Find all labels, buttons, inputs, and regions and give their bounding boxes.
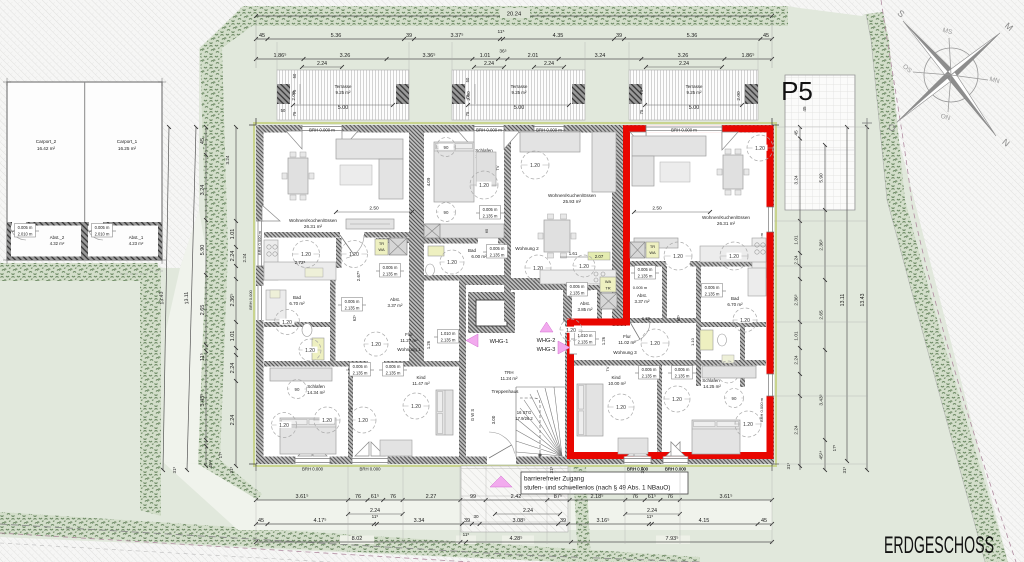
svg-text:90: 90	[444, 210, 449, 215]
svg-text:3.24: 3.24	[794, 175, 800, 185]
svg-text:2.135 m: 2.135 m	[490, 253, 505, 258]
svg-text:G W S: G W S	[470, 409, 475, 422]
svg-text:2.24: 2.24	[544, 61, 554, 67]
svg-text:Schlafen: Schlafen	[307, 384, 325, 389]
svg-text:90: 90	[444, 145, 449, 150]
svg-text:31⁵: 31⁵	[786, 462, 791, 469]
svg-text:5.00: 5.00	[338, 105, 349, 111]
svg-text:4.23 m²: 4.23 m²	[129, 241, 144, 246]
svg-text:1.01: 1.01	[480, 53, 491, 59]
svg-text:87⁵: 87⁵	[554, 493, 562, 500]
svg-text:3.26: 3.26	[340, 53, 351, 59]
svg-text:2.27: 2.27	[426, 494, 437, 500]
svg-text:25.93 m²: 25.93 m²	[563, 199, 582, 204]
svg-text:1.86⁵: 1.86⁵	[274, 52, 287, 59]
svg-text:2.135 m: 2.135 m	[642, 374, 657, 379]
svg-text:61⁵: 61⁵	[648, 493, 656, 500]
svg-text:2.135 m: 2.135 m	[705, 292, 720, 297]
svg-text:2.01: 2.01	[528, 53, 539, 59]
svg-text:2.67⁵: 2.67⁵	[356, 271, 361, 282]
svg-text:9.25 m²: 9.25 m²	[336, 90, 351, 95]
svg-text:1.20: 1.20	[371, 342, 381, 348]
svg-text:3.37⁵: 3.37⁵	[451, 32, 464, 39]
svg-text:1.20: 1.20	[579, 264, 589, 270]
svg-text:2.135 m: 2.135 m	[638, 274, 653, 279]
svg-text:1.20: 1.20	[349, 252, 359, 258]
svg-text:Abst._2: Abst._2	[50, 235, 65, 240]
svg-text:2.18⁵: 2.18⁵	[591, 493, 604, 500]
svg-text:4.32 m²: 4.32 m²	[50, 241, 65, 246]
svg-text:0.005 m: 0.005 m	[675, 367, 690, 372]
svg-text:45¹⁴: 45¹⁴	[819, 451, 825, 460]
svg-text:1.20: 1.20	[301, 252, 311, 258]
svg-text:1.01: 1.01	[230, 229, 236, 240]
svg-text:2.65: 2.65	[819, 310, 825, 320]
svg-text:1.01: 1.01	[794, 331, 800, 341]
svg-text:2.24: 2.24	[794, 355, 800, 365]
svg-text:1.20: 1.20	[411, 404, 421, 410]
svg-text:TV: TV	[606, 366, 610, 371]
svg-text:Flur: Flur	[623, 334, 631, 339]
svg-text:45: 45	[794, 130, 800, 136]
svg-text:Wohnen/Kuchen/Essen: Wohnen/Kuchen/Essen	[548, 193, 596, 198]
svg-text:16 STG: 16 STG	[517, 410, 531, 415]
svg-text:4.35: 4.35	[553, 33, 564, 39]
svg-text:Carport_1: Carport_1	[117, 139, 138, 144]
svg-text:2.24: 2.24	[523, 508, 533, 514]
svg-text:1.20: 1.20	[740, 318, 750, 324]
svg-text:2.135 m: 2.135 m	[483, 214, 498, 219]
svg-text:5.36: 5.36	[331, 33, 342, 39]
svg-text:WHG-3: WHG-3	[537, 347, 556, 353]
svg-text:14.34 m²: 14.34 m²	[307, 390, 325, 395]
svg-text:BRH 0.000 m: BRH 0.000 m	[476, 128, 502, 133]
svg-text:75: 75	[465, 111, 470, 116]
svg-text:20.24: 20.24	[507, 12, 522, 18]
svg-text:2.135 m: 2.135 m	[441, 338, 456, 343]
svg-text:45: 45	[761, 518, 767, 524]
svg-text:0.005 m: 0.005 m	[353, 364, 368, 369]
svg-text:3.36⁵: 3.36⁵	[423, 52, 436, 59]
svg-text:ERDGESCHOSS: ERDGESCHOSS	[884, 532, 994, 559]
svg-text:16.42 m²: 16.42 m²	[37, 146, 56, 151]
svg-text:99: 99	[470, 494, 476, 500]
svg-text:Kind: Kind	[416, 375, 426, 380]
svg-text:0.005 m: 0.005 m	[490, 246, 505, 251]
svg-text:11.24 m²: 11.24 m²	[500, 376, 518, 381]
svg-text:Schlafen: Schlafen	[702, 378, 720, 383]
svg-text:3.00: 3.00	[491, 415, 496, 424]
svg-text:2.36⁵: 2.36⁵	[229, 294, 236, 307]
svg-text:50: 50	[292, 73, 297, 78]
svg-text:11⁵: 11⁵	[498, 29, 505, 35]
svg-text:stufen- und schwellenlos (nach: stufen- und schwellenlos (nach § 49 Abs.…	[524, 485, 670, 492]
svg-text:7.93⁵: 7.93⁵	[666, 535, 679, 542]
svg-text:45: 45	[763, 33, 769, 39]
svg-text:65: 65	[484, 228, 489, 233]
svg-text:2.50: 2.50	[652, 206, 662, 212]
svg-text:P5: P5	[781, 76, 813, 106]
svg-text:1.20: 1.20	[729, 254, 739, 260]
svg-text:31⁵: 31⁵	[229, 466, 234, 473]
svg-text:6.70 m²: 6.70 m²	[289, 301, 305, 306]
svg-text:76: 76	[632, 494, 638, 500]
svg-text:WHG-2: WHG-2	[537, 338, 556, 344]
svg-text:WHG-1: WHG-1	[490, 339, 509, 345]
svg-text:17⁵: 17⁵	[832, 444, 837, 451]
svg-text:6.00 m²: 6.00 m²	[471, 254, 487, 259]
svg-text:2.24: 2.24	[230, 251, 236, 262]
svg-text:13.11: 13.11	[184, 291, 191, 304]
svg-text:2.07: 2.07	[595, 254, 604, 259]
svg-text:3.24: 3.24	[225, 155, 230, 164]
svg-text:50: 50	[281, 108, 286, 113]
svg-text:1.26: 1.26	[642, 316, 651, 321]
svg-text:Bad: Bad	[731, 296, 740, 301]
svg-text:75: 75	[639, 89, 644, 94]
svg-text:45: 45	[259, 33, 265, 39]
svg-text:62⁵: 62⁵	[352, 315, 357, 322]
svg-text:2.135 m: 2.135 m	[345, 306, 360, 311]
svg-text:BRH 0.000: BRH 0.000	[248, 289, 253, 309]
svg-text:1.20: 1.20	[279, 423, 289, 429]
svg-text:2.24: 2.24	[230, 415, 236, 426]
svg-text:BRH 0.000: BRH 0.000	[665, 467, 687, 472]
svg-text:Wohnung 2: Wohnung 2	[515, 246, 539, 251]
svg-text:45: 45	[200, 138, 206, 144]
svg-text:3.16⁵: 3.16⁵	[597, 517, 610, 524]
svg-text:WA: WA	[605, 279, 612, 284]
svg-text:0.005 m: 0.005 m	[18, 225, 33, 230]
svg-text:0.005 m: 0.005 m	[383, 265, 398, 270]
svg-text:3.26: 3.26	[678, 53, 689, 59]
svg-text:31⁵: 31⁵	[842, 466, 847, 473]
svg-text:1.86⁵: 1.86⁵	[742, 52, 755, 59]
svg-text:76: 76	[390, 494, 396, 500]
svg-text:0.005 m: 0.005 m	[633, 285, 648, 290]
svg-text:Abst.: Abst.	[637, 293, 647, 298]
svg-text:4.28⁵: 4.28⁵	[510, 535, 523, 542]
svg-text:1.20: 1.20	[650, 341, 660, 347]
svg-text:2.00: 2.00	[736, 91, 742, 101]
svg-text:5.90: 5.90	[819, 173, 825, 183]
svg-text:75: 75	[292, 111, 297, 116]
svg-text:0.005 m: 0.005 m	[345, 299, 360, 304]
svg-text:WA: WA	[378, 247, 385, 252]
svg-text:0.005 m: 0.005 m	[642, 367, 657, 372]
svg-text:Abst.: Abst.	[580, 301, 590, 306]
svg-text:BRH 0.000 m: BRH 0.000 m	[257, 230, 262, 255]
svg-text:3.85 m²: 3.85 m²	[578, 307, 593, 312]
svg-text:31⁵: 31⁵	[549, 466, 554, 473]
svg-text:1.61: 1.61	[569, 251, 578, 256]
svg-text:4.09: 4.09	[426, 177, 431, 186]
svg-text:BRH 0.000: BRH 0.000	[302, 467, 324, 472]
svg-text:75: 75	[292, 89, 297, 94]
svg-text:30: 30	[473, 514, 479, 519]
svg-text:1.20: 1.20	[672, 397, 682, 403]
svg-text:36⁵: 36⁵	[499, 49, 506, 55]
svg-text:3.24: 3.24	[200, 185, 206, 196]
svg-text:1.20: 1.20	[566, 328, 576, 334]
svg-text:2.010 m: 2.010 m	[95, 232, 110, 237]
svg-text:3.37 m²: 3.37 m²	[388, 303, 403, 308]
svg-text:2.24: 2.24	[230, 363, 236, 374]
svg-text:11⁵: 11⁵	[647, 514, 654, 519]
svg-text:Wohnen/Kuchen/Essen: Wohnen/Kuchen/Essen	[702, 215, 750, 220]
svg-text:BRH 0.000: BRH 0.000	[627, 467, 649, 472]
svg-text:2.135 m: 2.135 m	[675, 374, 690, 379]
svg-text:2.36⁵: 2.36⁵	[794, 294, 800, 305]
svg-text:2.010 m: 2.010 m	[18, 232, 33, 237]
svg-text:1.20: 1.20	[479, 183, 489, 189]
svg-text:1.20: 1.20	[743, 422, 753, 428]
svg-text:TRH: TRH	[504, 370, 513, 375]
svg-text:barrierefreier Zugang: barrierefreier Zugang	[524, 476, 584, 483]
svg-text:76: 76	[355, 494, 361, 500]
svg-text:1.26: 1.26	[426, 340, 431, 349]
svg-text:45: 45	[258, 518, 264, 524]
svg-text:TV: TV	[496, 165, 500, 170]
svg-text:Terrasse: Terrasse	[335, 84, 352, 89]
svg-text:45¹⁴: 45¹⁴	[208, 460, 213, 468]
svg-text:3.24: 3.24	[595, 53, 606, 59]
svg-text:3.61⁵: 3.61⁵	[296, 493, 309, 500]
svg-text:2.24: 2.24	[794, 425, 800, 435]
svg-text:8.02: 8.02	[352, 536, 363, 542]
svg-text:Treppenhaus: Treppenhaus	[492, 389, 520, 394]
svg-text:0.005 m: 0.005 m	[386, 364, 401, 369]
svg-text:76: 76	[667, 494, 673, 500]
svg-text:1.20: 1.20	[282, 320, 292, 326]
svg-text:11⁵: 11⁵	[372, 514, 379, 519]
svg-text:90: 90	[295, 387, 300, 392]
svg-text:3.08⁵: 3.08⁵	[513, 517, 526, 524]
svg-text:2.24: 2.24	[317, 61, 327, 67]
svg-text:45: 45	[802, 106, 807, 112]
svg-text:Wohnung 1: Wohnung 1	[397, 347, 421, 352]
svg-text:39: 39	[406, 33, 412, 39]
svg-text:11⁵: 11⁵	[199, 353, 206, 361]
svg-text:0.005 m: 0.005 m	[638, 267, 653, 272]
svg-text:4.17⁵: 4.17⁵	[314, 517, 327, 524]
svg-text:BRH 0.000: BRH 0.000	[359, 467, 381, 472]
svg-text:2.42: 2.42	[511, 494, 522, 500]
svg-text:3.43⁵: 3.43⁵	[199, 394, 206, 407]
svg-text:3.37 m²: 3.37 m²	[635, 299, 650, 304]
svg-text:1.010 m: 1.010 m	[441, 331, 456, 336]
svg-text:Terrasse: Terrasse	[686, 84, 703, 89]
svg-text:Bad: Bad	[293, 295, 302, 300]
svg-text:1.010 m: 1.010 m	[578, 333, 593, 338]
svg-text:11.27 m²: 11.27 m²	[400, 338, 418, 343]
svg-text:2.24: 2.24	[242, 253, 247, 262]
svg-text:2.24: 2.24	[794, 255, 800, 265]
svg-text:11.02 m²: 11.02 m²	[618, 340, 636, 345]
svg-text:17⁵: 17⁵	[218, 451, 223, 458]
svg-text:5.90: 5.90	[200, 245, 206, 256]
svg-text:39: 39	[464, 518, 470, 524]
svg-text:BRH 0.000 m: BRH 0.000 m	[309, 128, 335, 133]
svg-text:1.10: 1.10	[690, 337, 695, 346]
svg-text:6.70 m²: 6.70 m²	[727, 302, 743, 307]
svg-text:BRH 0.000 m: BRH 0.000 m	[671, 128, 697, 133]
svg-text:Bad: Bad	[468, 248, 477, 253]
svg-text:2.72⁵: 2.72⁵	[295, 260, 306, 265]
svg-text:WA: WA	[649, 250, 656, 255]
svg-text:2.36⁵: 2.36⁵	[819, 239, 825, 250]
svg-text:2.65: 2.65	[200, 305, 206, 316]
svg-text:Carport_2: Carport_2	[36, 139, 57, 144]
svg-text:5.00: 5.00	[689, 105, 700, 111]
svg-text:1.20: 1.20	[358, 418, 368, 424]
svg-text:10.00 m²: 10.00 m²	[608, 381, 626, 386]
svg-text:90: 90	[732, 396, 737, 401]
svg-text:0.005 m: 0.005 m	[483, 207, 498, 212]
svg-text:2.135 m: 2.135 m	[570, 291, 585, 296]
svg-text:5.00: 5.00	[514, 105, 525, 111]
svg-text:2.135 m: 2.135 m	[386, 371, 401, 376]
svg-text:2.50: 2.50	[369, 206, 379, 212]
svg-text:Kind: Kind	[611, 375, 621, 380]
svg-text:Wohnen/Kochen/Essen: Wohnen/Kochen/Essen	[289, 218, 337, 223]
svg-text:13.43: 13.43	[159, 291, 166, 304]
svg-text:16.25 m²: 16.25 m²	[118, 146, 137, 151]
svg-text:31⁵: 31⁵	[172, 466, 177, 473]
svg-text:1.20: 1.20	[755, 146, 765, 152]
svg-text:1.20: 1.20	[673, 254, 683, 260]
svg-text:Terrasse: Terrasse	[511, 84, 528, 89]
svg-text:31⁵: 31⁵	[640, 466, 645, 473]
svg-text:14.25 m²: 14.25 m²	[703, 384, 721, 389]
svg-text:4.15: 4.15	[699, 518, 710, 524]
svg-text:1.20: 1.20	[322, 418, 332, 424]
svg-text:Abst._1: Abst._1	[129, 235, 144, 240]
svg-text:13.11: 13.11	[840, 294, 846, 307]
svg-text:5.36: 5.36	[687, 33, 698, 39]
svg-text:TR: TR	[605, 286, 610, 291]
svg-text:1.01: 1.01	[794, 235, 800, 245]
svg-text:26.31 m²: 26.31 m²	[304, 224, 323, 229]
svg-text:75: 75	[639, 109, 644, 114]
svg-text:1.26: 1.26	[601, 336, 606, 345]
svg-text:2.24: 2.24	[679, 61, 689, 67]
svg-text:Wohnung 3: Wohnung 3	[613, 350, 637, 355]
svg-text:9.25 m²: 9.25 m²	[512, 90, 527, 95]
svg-text:1.01: 1.01	[230, 331, 236, 342]
svg-text:1.20: 1.20	[447, 260, 457, 266]
svg-text:2.135 m: 2.135 m	[383, 272, 398, 277]
svg-text:TR: TR	[650, 244, 655, 249]
svg-text:0.005 m: 0.005 m	[570, 284, 585, 289]
svg-text:17.9/26.2: 17.9/26.2	[515, 416, 533, 421]
svg-text:50: 50	[465, 77, 470, 82]
svg-text:TR: TR	[379, 241, 384, 246]
svg-text:62⁵: 62⁵	[676, 315, 681, 322]
svg-text:Flur: Flur	[405, 332, 413, 337]
svg-text:61⁵: 61⁵	[371, 493, 379, 500]
svg-text:0.005 m: 0.005 m	[95, 225, 110, 230]
svg-text:39: 39	[560, 518, 566, 524]
svg-text:11.47 m²: 11.47 m²	[412, 381, 430, 386]
svg-text:Abst.: Abst.	[390, 297, 400, 302]
svg-text:1.20: 1.20	[305, 348, 315, 354]
svg-text:11⁵: 11⁵	[463, 532, 470, 537]
svg-text:2.24: 2.24	[484, 61, 494, 67]
svg-text:39: 39	[616, 33, 622, 39]
svg-text:75: 75	[465, 94, 470, 99]
svg-text:0.005 m: 0.005 m	[705, 285, 720, 290]
svg-text:TV: TV	[349, 407, 353, 412]
svg-text:2.135 m: 2.135 m	[353, 371, 368, 376]
svg-text:3.34: 3.34	[414, 518, 425, 524]
svg-text:1.20: 1.20	[616, 405, 626, 411]
svg-text:13.43: 13.43	[860, 293, 866, 306]
svg-text:9.25 m²: 9.25 m²	[687, 90, 702, 95]
svg-text:1.20: 1.20	[530, 163, 540, 169]
svg-text:3.61⁵: 3.61⁵	[720, 493, 733, 500]
svg-text:26.31 m²: 26.31 m²	[717, 221, 736, 226]
svg-text:2.135 m: 2.135 m	[578, 340, 593, 345]
